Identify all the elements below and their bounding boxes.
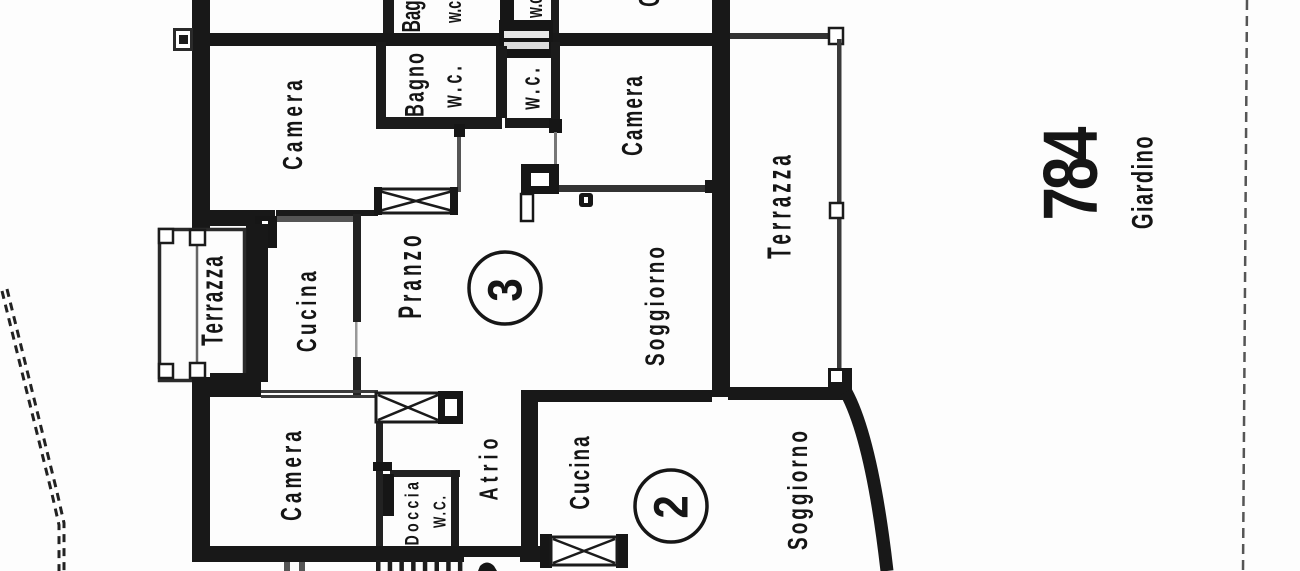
svg-text:w.c.: w.c. bbox=[521, 0, 546, 19]
svg-text:Bagno: Bagno bbox=[399, 51, 430, 117]
svg-text:Camera: Camera bbox=[276, 427, 308, 521]
svg-text:Camera: Camera bbox=[617, 74, 649, 156]
svg-text:Terrazza: Terrazza bbox=[760, 151, 798, 259]
svg-text:2: 2 bbox=[644, 495, 698, 518]
svg-text:Cucina: Cucina bbox=[566, 434, 596, 509]
svg-text:Giardino: Giardino bbox=[1127, 135, 1160, 229]
svg-text:Soggiorno: Soggiorno bbox=[784, 428, 814, 550]
svg-text:Doccia: Doccia bbox=[401, 479, 423, 546]
svg-text:3: 3 bbox=[478, 278, 532, 301]
svg-text:Terrazza: Terrazza bbox=[196, 254, 230, 346]
svg-text:Pranzo: Pranzo bbox=[392, 231, 429, 318]
svg-text:Atrio: Atrio bbox=[474, 434, 503, 501]
svg-text:Camera: Camera bbox=[279, 76, 309, 170]
svg-text:W.C.: W.C. bbox=[430, 494, 450, 528]
svg-text:784: 784 bbox=[1028, 127, 1114, 221]
svg-text:Soggiorno: Soggiorno bbox=[640, 244, 670, 366]
svg-text:w.c.: w.c. bbox=[439, 62, 468, 108]
svg-text:Camera: Camera bbox=[634, 0, 666, 7]
svg-text:w.c.: w.c. bbox=[517, 64, 546, 110]
svg-text:Cucina: Cucina bbox=[293, 268, 323, 352]
svg-text:w.c.: w.c. bbox=[440, 0, 465, 24]
svg-text:Bagno: Bagno bbox=[396, 0, 425, 32]
